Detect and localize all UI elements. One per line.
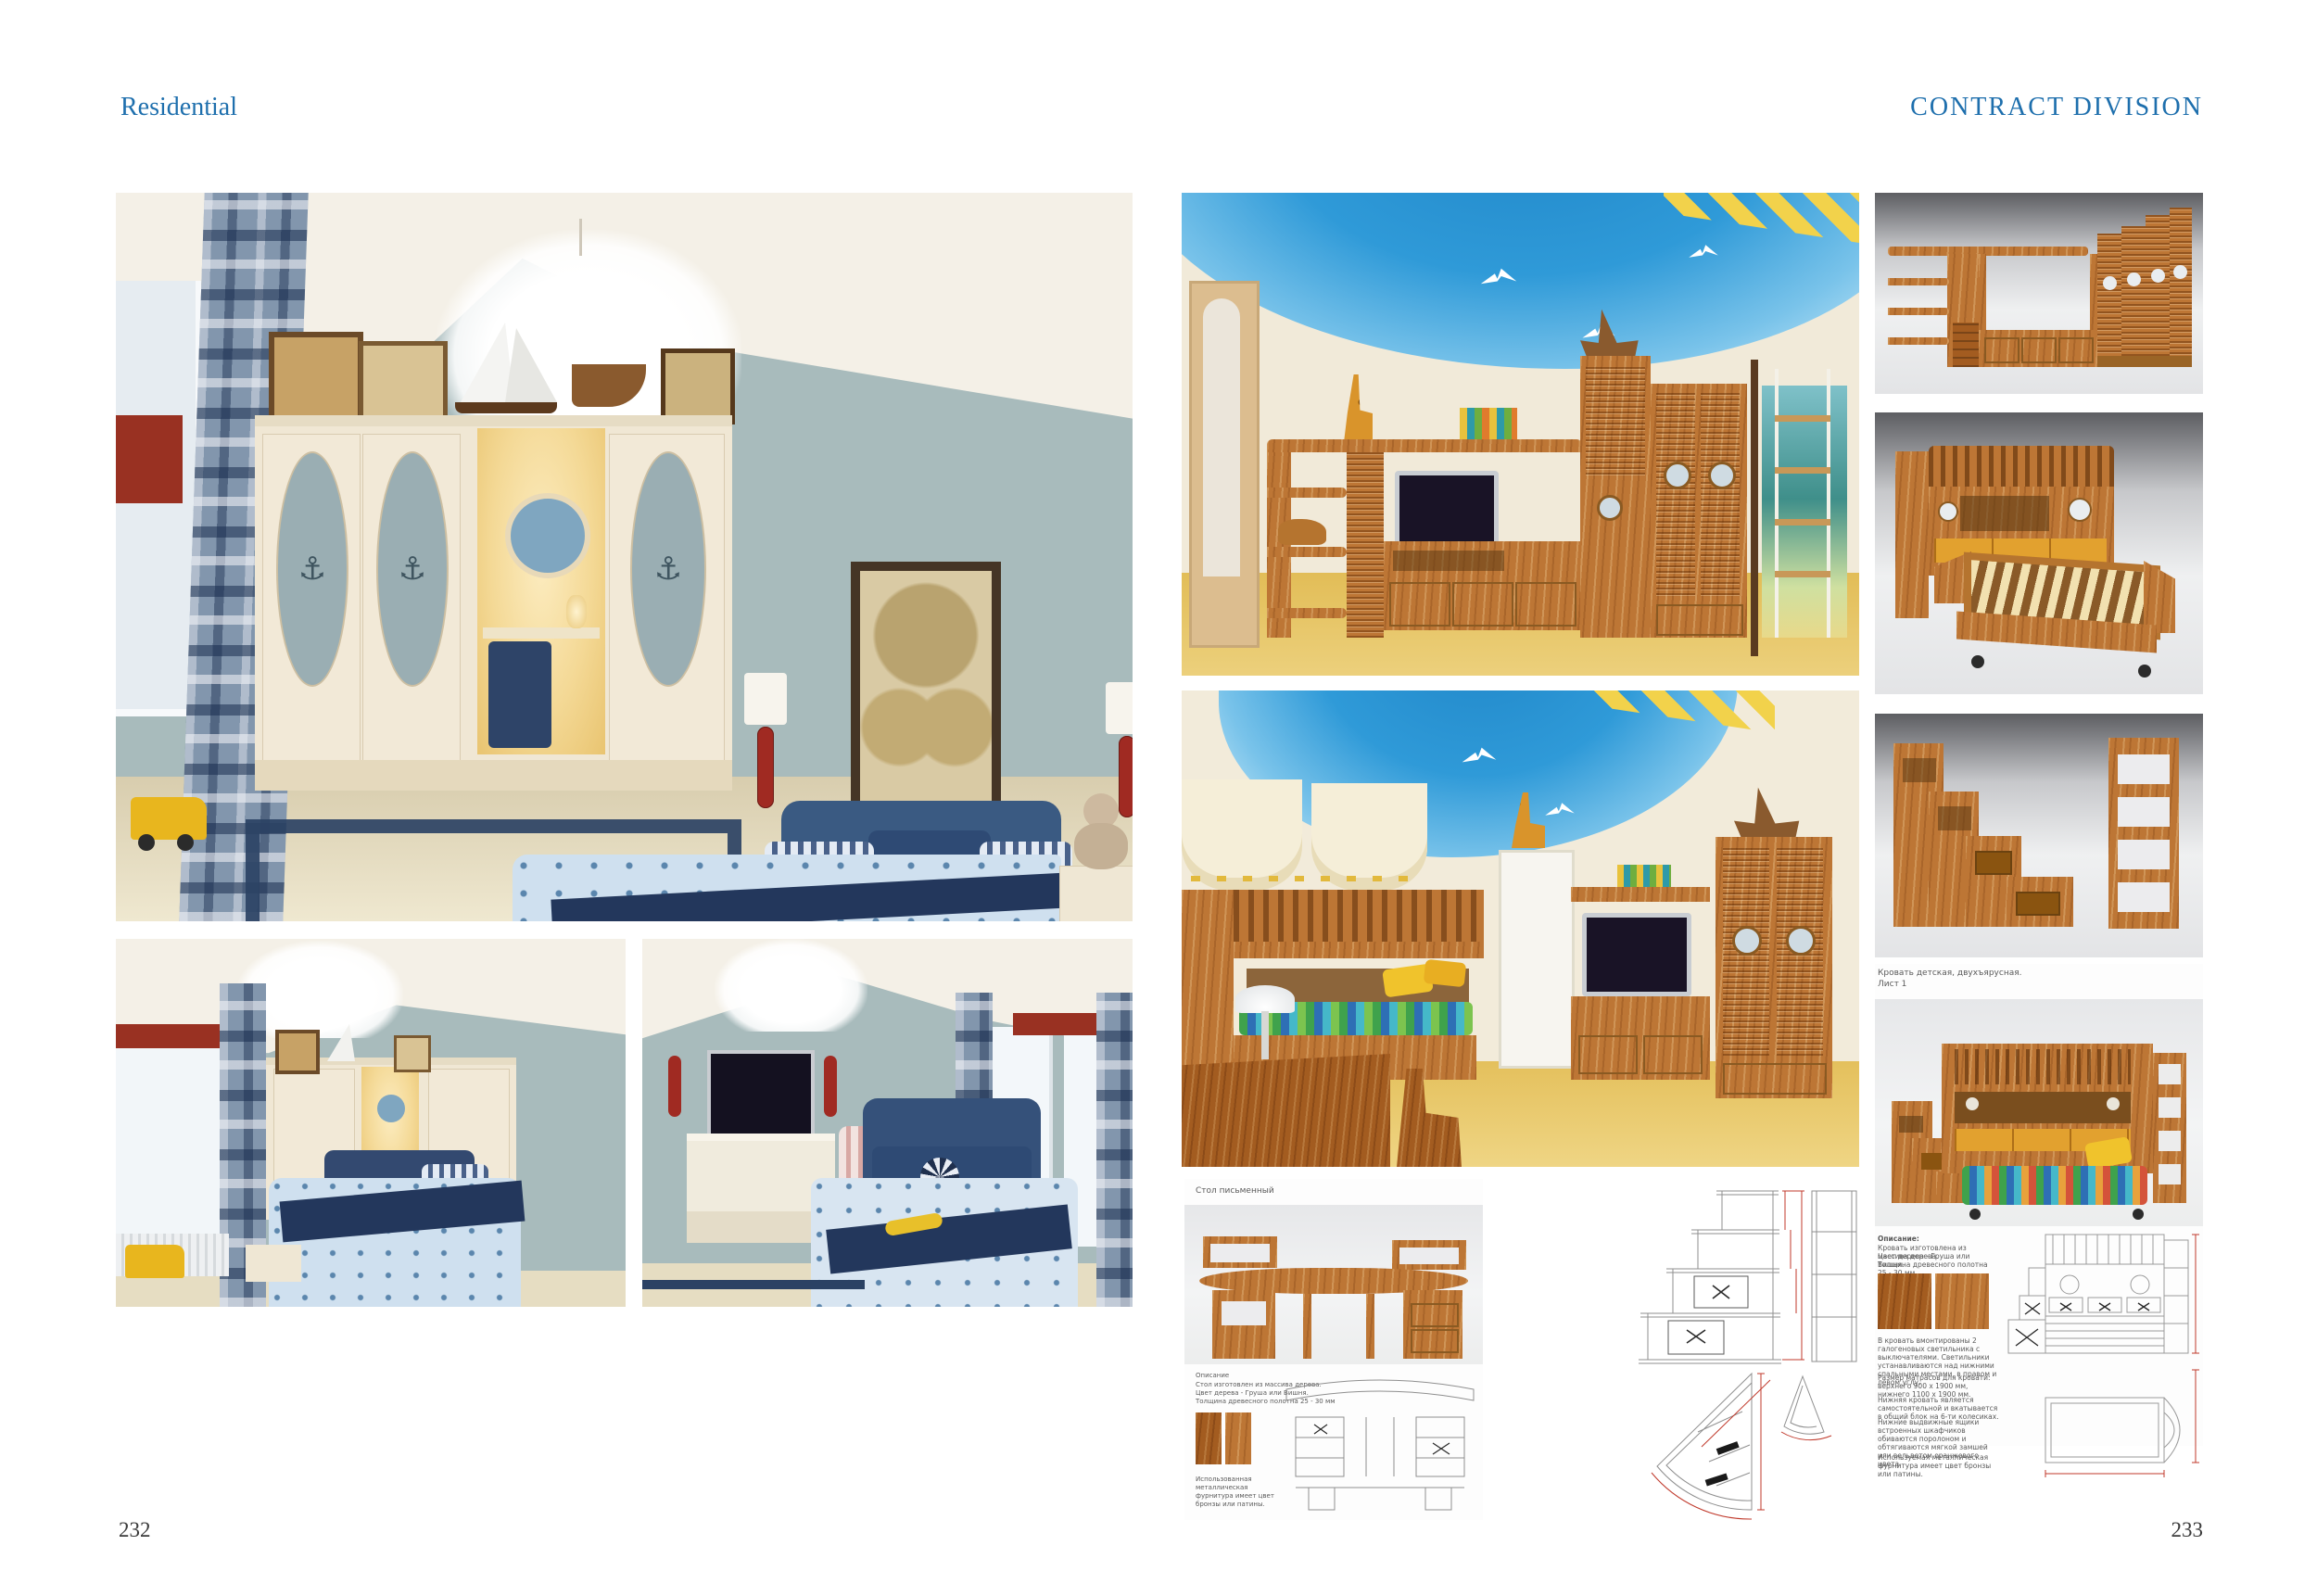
porthole <box>2068 498 2092 522</box>
rhino-figurine <box>1278 519 1326 545</box>
caster-wheel <box>1969 1209 1981 1220</box>
curved-shelf <box>1267 608 1347 618</box>
window-winter <box>116 1024 234 1242</box>
photo-bedroom-view-dresser <box>642 939 1133 1307</box>
porthole-mirror <box>2151 269 2165 283</box>
toy-truck-wheel <box>177 834 194 851</box>
drawer-front <box>1515 582 1576 627</box>
tall-cabinet <box>1580 356 1651 638</box>
crib-rail-spindles <box>1955 1049 2131 1084</box>
sheet-footnote: Использованная металлическая фурнитура и… <box>1196 1476 1285 1509</box>
rope <box>1827 369 1830 638</box>
ship-model <box>1734 783 1803 837</box>
window-valance <box>1013 1013 1106 1035</box>
books-row <box>1617 865 1671 887</box>
description-heading: Описание: <box>1878 1235 1919 1243</box>
page-number-left: 232 <box>119 1518 151 1542</box>
mushroom-lamp-stem <box>1261 1011 1269 1059</box>
bed-tech-sheet: Кровать детская, двухъярусная. Лист 1 Оп… <box>1875 964 2203 1446</box>
louver-door <box>2170 208 2192 356</box>
drawer-front <box>1411 1329 1459 1353</box>
nightstand <box>1059 866 1133 921</box>
toy-truck-wheel <box>138 834 155 851</box>
vanity-niche <box>477 428 605 754</box>
render-tv-wall-unit <box>1875 193 2203 394</box>
wardrobe <box>1716 837 1832 1098</box>
bed-render-image <box>1875 999 2203 1226</box>
toy-truck <box>125 1245 184 1278</box>
sheet-paragraph: Размер матрасов для кровати: верхнего 90… <box>1878 1374 2000 1399</box>
photo-kidsroom-bunkbed <box>1182 690 1859 1167</box>
porthole-mirror <box>2127 272 2141 286</box>
toy-truck <box>131 797 207 840</box>
wall-picture <box>275 1030 320 1074</box>
wall-sconce-shade <box>1106 682 1133 734</box>
louver-door <box>2146 215 2170 356</box>
curved-shelf <box>1888 278 1949 285</box>
room-door <box>1189 281 1260 648</box>
wall-picture <box>269 332 363 426</box>
gym-pole <box>1751 360 1758 656</box>
yellow-pillow <box>1424 959 1466 987</box>
books-row <box>1460 408 1517 439</box>
wall-sconce-red-beads <box>1119 736 1133 817</box>
hutch-left <box>1203 1236 1277 1268</box>
drawer-stack <box>1953 323 1979 367</box>
porthole-mirror <box>1732 926 1762 956</box>
pullout-footboard <box>2144 561 2175 633</box>
catalog-spread: { "header": { "left_label": "Residential… <box>0 0 2317 1596</box>
sheet-paragraph: Используемая металлическая фурнитура име… <box>1878 1453 2000 1478</box>
porthole-mirror <box>1786 926 1816 956</box>
louver-door <box>1656 393 1695 597</box>
side-shelf <box>2153 1053 2186 1203</box>
world-map-picture <box>851 562 1001 810</box>
photo-bedroom-view-window <box>116 939 626 1307</box>
porthole <box>2107 1097 2120 1110</box>
description-line: Описание <box>1196 1372 1229 1380</box>
wood-swatch <box>1196 1412 1222 1464</box>
chandelier-stem <box>579 219 582 256</box>
drawer-front <box>1452 582 1513 627</box>
wardrobe-door: ⚓ <box>609 434 725 765</box>
curved-shelf <box>1888 308 1949 315</box>
swallow-icon <box>1543 802 1576 817</box>
louver-cabinet <box>1347 452 1384 638</box>
porthole-mirror <box>1708 462 1736 489</box>
tv-cabinet <box>1384 541 1582 630</box>
teddy-bear-body <box>1074 823 1128 869</box>
window-valance <box>116 415 183 503</box>
louver-door <box>2121 226 2146 356</box>
desk-technical-drawing <box>1277 1369 1483 1517</box>
drawer-front <box>2058 337 2094 363</box>
open-niche <box>1960 496 2049 531</box>
shelf-cubby <box>2159 1164 2181 1184</box>
porthole <box>1966 1097 1979 1110</box>
photo-main-bedroom: ⚓ ⚓ ⚓ <box>116 193 1133 921</box>
bed-bench <box>246 1245 301 1282</box>
mushroom-lamp-shade <box>1235 985 1295 1013</box>
wall-picture <box>359 341 448 424</box>
garland <box>1191 876 1423 881</box>
stair-niche <box>1899 1116 1923 1133</box>
wood-swatch <box>1225 1412 1251 1464</box>
ship-model-hull <box>455 402 557 413</box>
bunk-top-rail-spindles <box>1234 890 1484 942</box>
drawer-front <box>1723 1063 1827 1095</box>
ladder-rung <box>1775 415 1830 422</box>
shelf-cubby <box>2118 840 2170 869</box>
round-mirror <box>505 493 590 578</box>
bridge-shelf <box>1267 439 1582 452</box>
desk-render-image <box>1184 1205 1483 1364</box>
wall-sconce-shade <box>744 673 787 725</box>
top-shelf <box>1888 247 2088 256</box>
tv-cabinet <box>1571 996 1710 1080</box>
drawer-front <box>1984 337 2019 363</box>
roman-shade <box>1182 779 1302 891</box>
wardrobe <box>1651 384 1747 638</box>
sheet-title: Кровать детская, двухъярусная. <box>1878 968 2022 979</box>
ladder-rung <box>1775 571 1830 577</box>
photo-kidsroom-tv-wall <box>1182 193 1859 676</box>
shelf-cubby <box>2159 1131 2181 1151</box>
desk-tech-sheet: Стол письменный Описание Стол изготовлен… <box>1184 1179 1483 1520</box>
giraffe-figurine <box>1341 374 1373 439</box>
curved-shelf <box>1888 337 1949 345</box>
desk-pedestal-right <box>1403 1290 1462 1359</box>
bay-upright <box>1979 254 1986 330</box>
render-stair-shelf <box>1875 714 2203 957</box>
wardrobe-door: ⚓ <box>362 434 461 765</box>
round-mirror <box>377 1095 405 1122</box>
porthole-mirror <box>1664 462 1691 489</box>
louver-door <box>1586 367 1645 478</box>
ship-model-sail <box>327 1024 355 1061</box>
ship-model-sail <box>505 328 557 402</box>
tv-screen <box>1582 913 1691 996</box>
wood-swatch <box>1878 1273 1931 1329</box>
desk-pedestal-left <box>1212 1290 1275 1359</box>
crib-rail-spindles <box>1929 446 2114 487</box>
drawer-front <box>1656 604 1743 636</box>
ladder-rung <box>1775 467 1830 474</box>
swallow-icon <box>1478 267 1519 285</box>
door-glass <box>1203 298 1240 576</box>
rainbow-mattress <box>1962 1166 2147 1205</box>
drawer-front <box>1389 582 1450 627</box>
wardrobe-unit: ⚓ ⚓ ⚓ <box>255 415 732 791</box>
tv-screen <box>1395 471 1499 551</box>
wall-sconce-red-beads <box>668 1056 681 1117</box>
room-door <box>1499 850 1575 1069</box>
caster-wheel <box>2138 665 2151 678</box>
drawer-front <box>2021 337 2057 363</box>
swallow-icon <box>1460 746 1499 764</box>
caster-wheel <box>2133 1209 2144 1220</box>
tall-shelf <box>2108 738 2179 929</box>
louver-door <box>1701 393 1740 597</box>
hutch-opening <box>1210 1244 1270 1262</box>
low-cabinet <box>1979 330 2097 367</box>
window-valance <box>116 1024 220 1048</box>
division-title: CONTRACT DIVISION <box>1910 93 2203 122</box>
sheet-paragraph: Нижняя кровать является самостоятельной … <box>1878 1396 2000 1421</box>
bay-upright <box>2090 254 2097 330</box>
stair-drawer <box>2016 892 2060 916</box>
rope <box>1775 369 1779 638</box>
porthole <box>1938 501 1958 522</box>
sheet-title: Стол письменный <box>1196 1186 1274 1196</box>
porthole-mirror <box>2173 265 2187 279</box>
swallow-icon <box>1687 244 1720 259</box>
desk <box>1182 1054 1390 1167</box>
wall-picture <box>661 348 735 424</box>
chandelier <box>715 939 867 1032</box>
tv-top-shelf <box>1571 887 1710 902</box>
bed-technical-drawing <box>2003 1231 2203 1481</box>
stairs-technical-drawing <box>1613 1184 1863 1520</box>
vanity-top <box>483 627 600 639</box>
sheet-number: Лист 1 <box>1878 980 1906 989</box>
shelf-cubby <box>2118 754 2170 784</box>
render-foldout-bed <box>1875 412 2203 694</box>
shelf-cubby <box>2118 882 2170 912</box>
navy-rug-edge <box>642 1280 865 1289</box>
roman-shade <box>1311 783 1427 891</box>
shelf-cubby <box>2159 1097 2181 1118</box>
cabinet-open-shelf <box>1393 551 1504 571</box>
shelf-cubby <box>2118 797 2170 827</box>
stair-niche <box>1938 806 1971 830</box>
bunk-upper-frame <box>1234 942 1484 958</box>
wall-sconce-red-beads <box>757 727 774 808</box>
bed-side-panel <box>1895 451 1929 618</box>
curved-shelf <box>1267 547 1347 557</box>
caster-wheel <box>1971 655 1984 668</box>
plaid-curtain <box>1096 993 1133 1307</box>
drawer-front <box>1411 1303 1459 1327</box>
page-section-title: Residential <box>120 93 237 122</box>
directors-chair <box>488 641 551 748</box>
desk-leg <box>1303 1294 1311 1359</box>
pedestal-shelf <box>1222 1301 1266 1325</box>
hutch-opening <box>1399 1248 1459 1264</box>
curved-shelf <box>1267 488 1347 498</box>
base-plinth <box>2097 356 2192 367</box>
page-number-right: 233 <box>2171 1518 2204 1542</box>
desk-leg <box>1366 1294 1374 1359</box>
ladder-rung <box>1775 519 1830 526</box>
drawer-front <box>1643 1035 1703 1074</box>
wall-sconce-red-beads <box>824 1056 837 1117</box>
wall-tv <box>707 1050 815 1137</box>
stair-niche <box>1903 758 1936 782</box>
hutch-right <box>1392 1240 1466 1270</box>
porthole-mirror <box>1597 495 1623 521</box>
mid-band <box>1955 1092 2131 1123</box>
stair-drawer <box>1975 851 2012 875</box>
shelf-cubby <box>2159 1064 2181 1084</box>
wardrobe-door: ⚓ <box>262 434 361 765</box>
wood-swatch <box>1935 1273 1989 1329</box>
drawer-front <box>1578 1035 1638 1074</box>
table-lamp <box>566 595 587 628</box>
wardrobe-plinth <box>255 760 732 791</box>
wall-picture <box>394 1035 431 1072</box>
porthole-mirror <box>2103 276 2117 290</box>
louver-door <box>2097 234 2121 356</box>
